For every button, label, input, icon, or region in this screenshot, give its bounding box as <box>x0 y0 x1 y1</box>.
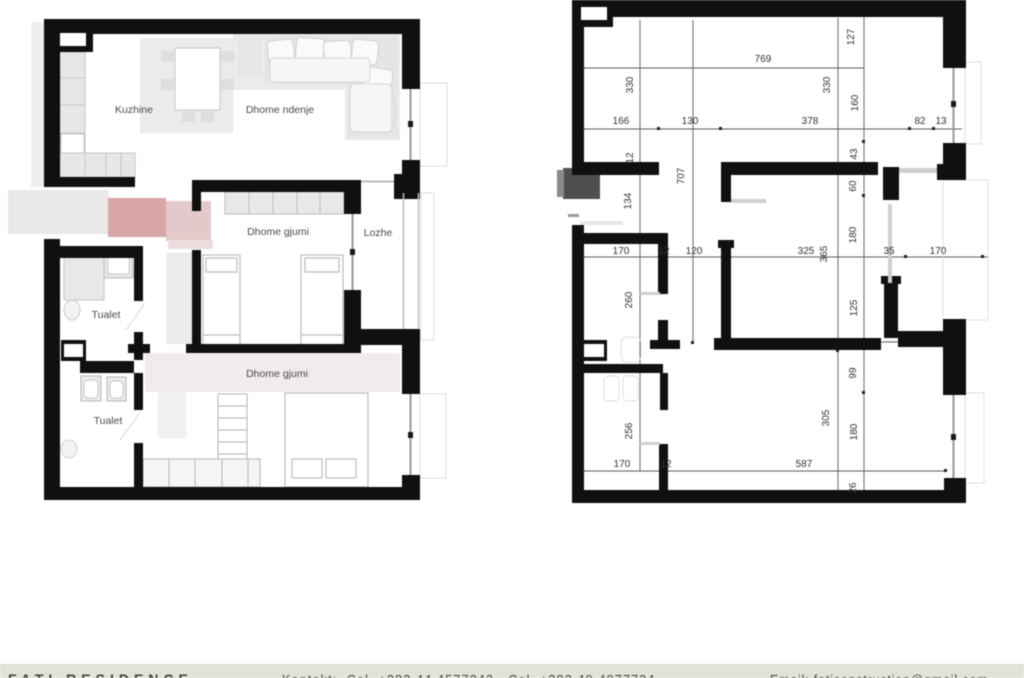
svg-text:12: 12 <box>660 459 672 470</box>
svg-text:26: 26 <box>848 482 859 494</box>
svg-text:FATI RESIDENCE: FATI RESIDENCE <box>8 671 193 678</box>
svg-text:160: 160 <box>850 94 861 111</box>
svg-text:365: 365 <box>819 245 830 262</box>
svg-text:170: 170 <box>614 459 631 470</box>
svg-text:170: 170 <box>930 246 947 257</box>
svg-text:166: 166 <box>613 116 630 127</box>
svg-text:134: 134 <box>623 192 634 209</box>
svg-text:305: 305 <box>821 409 832 426</box>
svg-text:587: 587 <box>796 459 813 470</box>
svg-text:260: 260 <box>624 291 635 308</box>
svg-text:130: 130 <box>682 116 699 127</box>
svg-text:12: 12 <box>658 246 670 257</box>
svg-text:378: 378 <box>802 116 819 127</box>
svg-text:35: 35 <box>883 246 895 257</box>
svg-text:13: 13 <box>935 116 947 127</box>
svg-text:325: 325 <box>798 246 815 257</box>
svg-text:82: 82 <box>914 116 926 127</box>
svg-text:180: 180 <box>849 423 860 440</box>
svg-text:330: 330 <box>822 76 833 93</box>
svg-text:Lozhe: Lozhe <box>364 227 393 239</box>
svg-text:Dhome ndenje: Dhome ndenje <box>246 104 314 116</box>
svg-text:170: 170 <box>613 246 630 257</box>
svg-text:Tualet: Tualet <box>94 415 123 427</box>
svg-text:125: 125 <box>849 299 860 316</box>
svg-text:Dhome gjumi: Dhome gjumi <box>246 368 308 380</box>
svg-text:Dhome gjumi: Dhome gjumi <box>247 226 309 238</box>
svg-text:60: 60 <box>848 180 859 192</box>
svg-text:Kuzhine: Kuzhine <box>115 104 153 116</box>
svg-text:Tualet: Tualet <box>92 309 121 321</box>
svg-text:Email: faticonstruction@gmail.: Email: faticonstruction@gmail.com <box>770 673 988 678</box>
svg-text:Kontakt: Cel. +383 44 4577343: Kontakt: Cel. +383 44 4577343 Cel. +383 … <box>282 673 656 678</box>
svg-text:330: 330 <box>625 76 636 93</box>
svg-text:43: 43 <box>849 148 860 160</box>
svg-text:127: 127 <box>846 28 857 45</box>
svg-text:12: 12 <box>625 152 636 164</box>
svg-text:180: 180 <box>848 226 859 243</box>
svg-text:256: 256 <box>624 422 635 439</box>
svg-text:769: 769 <box>755 54 772 65</box>
svg-text:99: 99 <box>848 367 859 379</box>
svg-text:120: 120 <box>686 246 703 257</box>
svg-text:707: 707 <box>676 167 687 184</box>
